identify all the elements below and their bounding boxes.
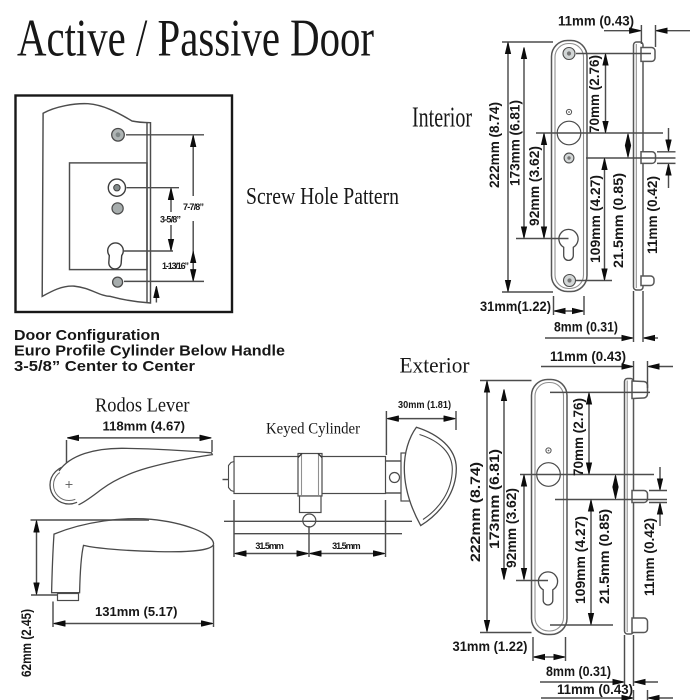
svg-text:Active / Passive Door: Active / Passive Door	[17, 10, 374, 68]
svg-text:11mm (0.42): 11mm (0.42)	[645, 176, 660, 254]
svg-text:11mm (0.43): 11mm (0.43)	[557, 682, 633, 697]
svg-text:222mm (8.74): 222mm (8.74)	[468, 462, 483, 562]
svg-text:62mm (2.45): 62mm (2.45)	[19, 609, 34, 677]
svg-text:131mm (5.17): 131mm (5.17)	[95, 605, 178, 619]
svg-text:222mm (8.74): 222mm (8.74)	[487, 102, 502, 188]
svg-text:92mm (3.62): 92mm (3.62)	[504, 488, 519, 568]
svg-text:30mm (1.81): 30mm (1.81)	[398, 399, 451, 411]
svg-text:173mm (6.81): 173mm (6.81)	[508, 100, 523, 186]
svg-text:31.5mm: 31.5mm	[255, 541, 284, 551]
svg-text:92mm (3.62): 92mm (3.62)	[527, 146, 542, 226]
svg-text:11mm (0.42): 11mm (0.42)	[642, 518, 657, 596]
svg-text:Door Configuration: Door Configuration	[14, 327, 160, 344]
svg-text:Rodos Lever: Rodos Lever	[95, 396, 190, 417]
svg-text:21.5mm (0.85): 21.5mm (0.85)	[597, 509, 612, 604]
svg-text:118mm (4.67): 118mm (4.67)	[103, 419, 186, 433]
svg-text:7-7/8”: 7-7/8”	[183, 202, 204, 212]
svg-text:3-5/8” Center to Center: 3-5/8” Center to Center	[14, 358, 195, 375]
svg-text:31mm(1.22): 31mm(1.22)	[480, 299, 551, 314]
svg-text:Keyed Cylinder: Keyed Cylinder	[266, 421, 361, 438]
svg-text:Exterior: Exterior	[400, 353, 470, 378]
svg-text:Euro Profile Cylinder Below Ha: Euro Profile Cylinder Below Handle	[14, 343, 285, 360]
svg-text:1-13/16”: 1-13/16”	[162, 261, 189, 271]
svg-text:31.5mm: 31.5mm	[332, 541, 361, 551]
svg-text:173mm (6.81): 173mm (6.81)	[487, 449, 502, 549]
svg-text:Interior: Interior	[412, 103, 472, 134]
svg-text:70mm (2.76): 70mm (2.76)	[587, 55, 602, 133]
svg-text:11mm (0.43): 11mm (0.43)	[550, 349, 626, 364]
svg-text:31mm (1.22): 31mm (1.22)	[453, 639, 528, 654]
svg-text:8mm (0.31): 8mm (0.31)	[554, 320, 618, 335]
svg-text:Screw Hole Pattern: Screw Hole Pattern	[246, 184, 399, 210]
svg-text:109mm (4.27): 109mm (4.27)	[573, 516, 588, 604]
svg-text:3-5/8”: 3-5/8”	[160, 215, 181, 225]
svg-text:109mm (4.27): 109mm (4.27)	[588, 175, 603, 263]
svg-text:21.5mm (0.85): 21.5mm (0.85)	[611, 173, 626, 268]
svg-text:11mm (0.43): 11mm (0.43)	[558, 14, 634, 29]
svg-text:70mm (2.76): 70mm (2.76)	[571, 398, 586, 476]
svg-text:8mm (0.31): 8mm (0.31)	[546, 664, 611, 679]
